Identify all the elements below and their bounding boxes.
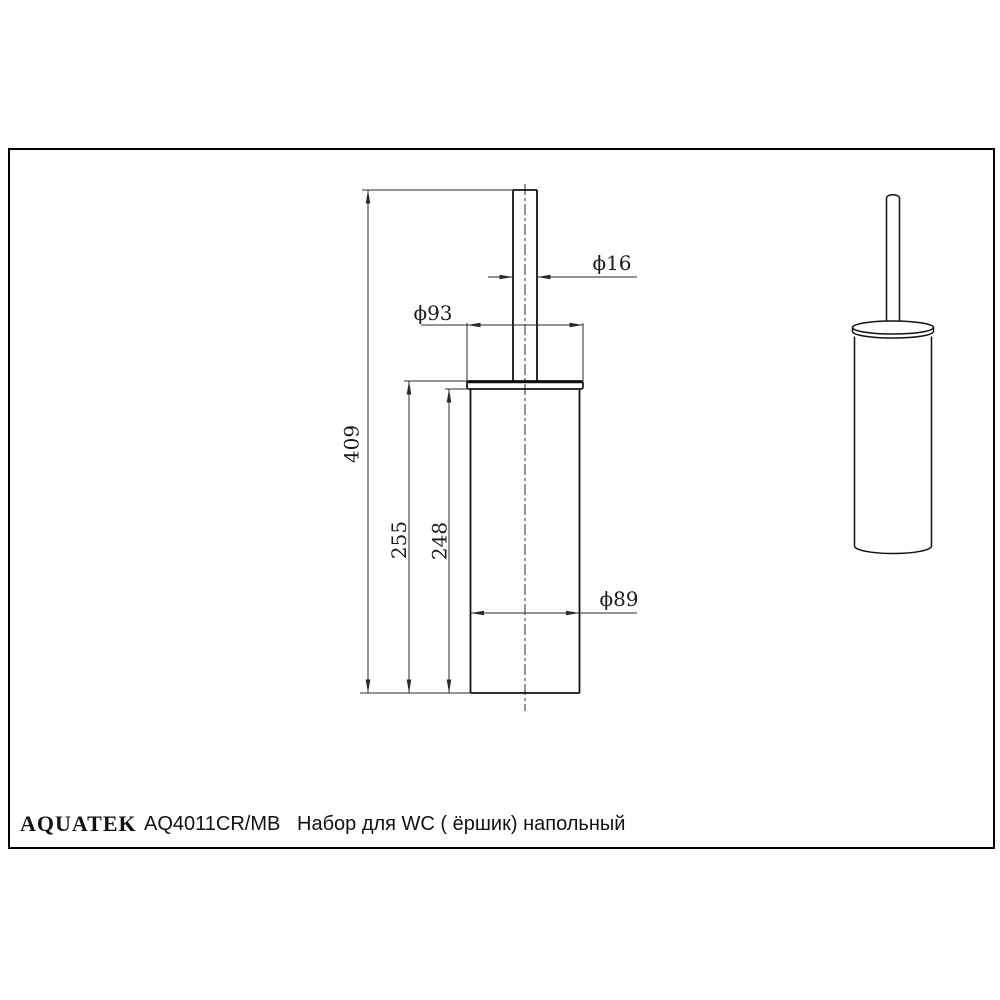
technical-drawing: 409 255 248 — [0, 0, 1000, 1000]
dim-lid-diameter: ϕ93 — [413, 301, 583, 381]
side-body — [855, 337, 932, 554]
model-number: AQ4011CR/MB — [144, 813, 280, 836]
dim-rod-diameter: ϕ16 — [488, 251, 637, 279]
drawing-sheet: 409 255 248 — [0, 0, 1000, 1000]
dim-rod-diameter-label: ϕ16 — [592, 251, 631, 275]
dim-total-height: 409 — [340, 190, 514, 693]
dim-container-height-label: 255 — [387, 521, 411, 559]
dim-lid-diameter-label: ϕ93 — [413, 301, 452, 325]
side-lid-top — [853, 321, 934, 334]
product-description: Набор для WC ( ёршик) напольный — [297, 813, 625, 836]
dim-body-diameter: ϕ89 — [471, 587, 639, 615]
front-view — [467, 184, 583, 711]
dim-body-height: 248 — [428, 389, 471, 693]
dim-total-height-label: 409 — [340, 425, 364, 463]
dimension-annotations: 409 255 248 — [340, 190, 639, 693]
side-view — [853, 195, 934, 554]
brand-logo: AQUATEK — [20, 811, 137, 837]
dim-body-height-label: 248 — [428, 522, 452, 560]
dim-body-diameter-label: ϕ89 — [599, 587, 638, 611]
side-rod — [887, 195, 900, 322]
